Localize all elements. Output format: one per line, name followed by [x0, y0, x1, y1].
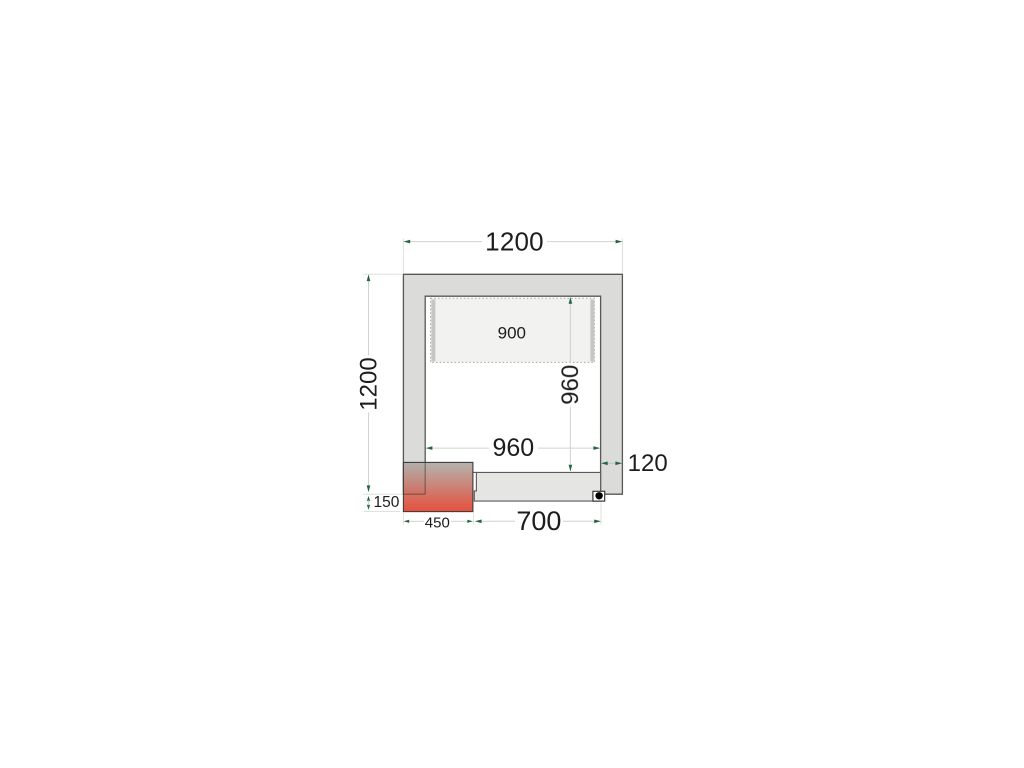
svg-text:120: 120	[628, 450, 668, 477]
svg-text:960: 960	[492, 434, 534, 462]
svg-text:900: 900	[498, 324, 526, 343]
svg-text:1200: 1200	[485, 227, 544, 257]
svg-text:450: 450	[425, 514, 450, 531]
svg-text:150: 150	[374, 494, 400, 511]
svg-text:700: 700	[516, 506, 561, 536]
svg-text:960: 960	[557, 365, 584, 405]
svg-text:1200: 1200	[356, 357, 383, 410]
